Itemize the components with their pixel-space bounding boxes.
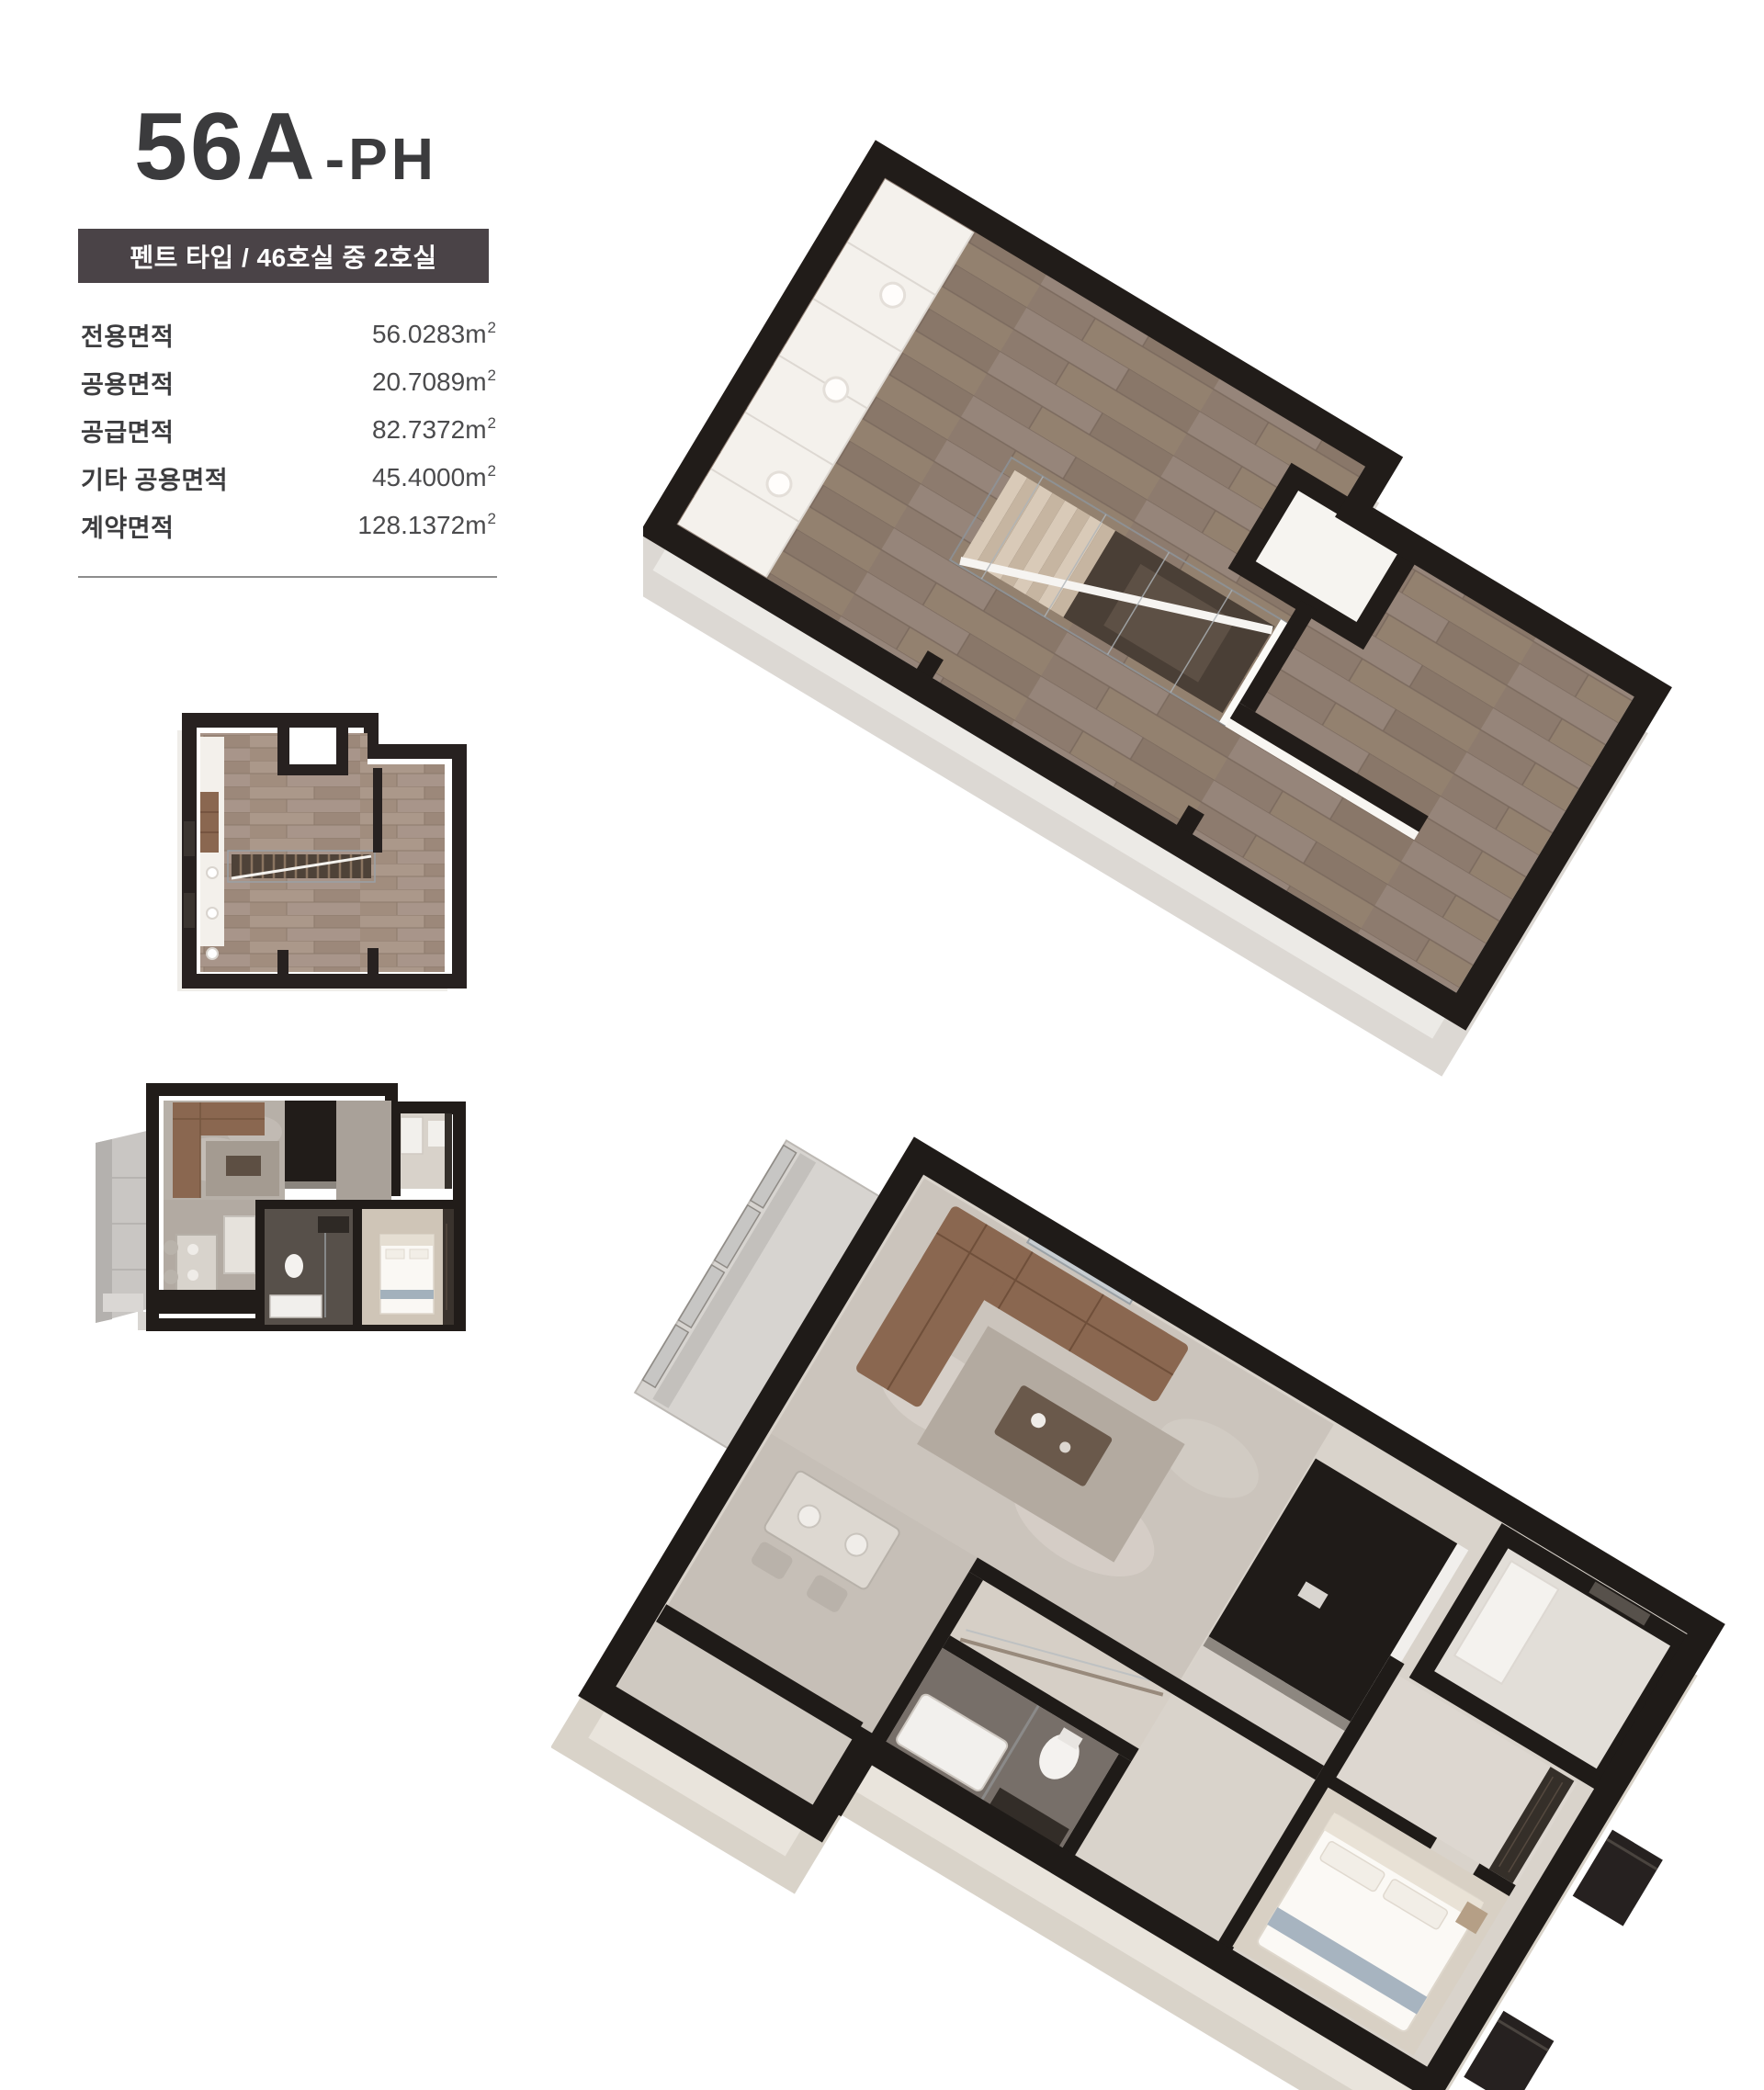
upper-floor-3d-render xyxy=(643,118,1700,1093)
section-divider xyxy=(78,576,497,578)
area-row: 계약면적 128.1372m2 xyxy=(81,502,496,549)
area-value: 82.7372m2 xyxy=(372,415,496,445)
area-row: 공용면적 20.7089m2 xyxy=(81,358,496,406)
type-banner: 펜트 타입 / 46호실 중 2호실 xyxy=(78,229,489,283)
lower-floor-3d-render xyxy=(551,1128,1736,2090)
lower-floorplan-thumbnail xyxy=(85,1077,472,1343)
area-value: 128.1372m2 xyxy=(357,511,496,540)
area-table: 전용면적 56.0283m2 공용면적 20.7089m2 공급면적 82.73… xyxy=(81,311,496,549)
area-label: 계약면적 xyxy=(81,508,174,544)
unit-title-suffix: -PH xyxy=(325,130,437,188)
area-value: 45.4000m2 xyxy=(372,463,496,492)
area-row: 공급면적 82.7372m2 xyxy=(81,406,496,454)
area-value: 20.7089m2 xyxy=(372,367,496,397)
unit-title-main: 56A xyxy=(134,99,318,195)
page: { "header": { "title_main": "56A", "titl… xyxy=(0,0,1764,2090)
type-banner-label: 펜트 타입 / 46호실 중 2호실 xyxy=(130,238,436,275)
upper-floorplan-thumbnail xyxy=(140,709,470,999)
unit-title: 56A -PH xyxy=(134,99,437,195)
area-label: 기타 공용면적 xyxy=(81,460,228,496)
area-label: 공급면적 xyxy=(81,412,174,448)
area-label: 전용면적 xyxy=(81,317,174,353)
area-row: 기타 공용면적 45.4000m2 xyxy=(81,454,496,502)
area-row: 전용면적 56.0283m2 xyxy=(81,311,496,358)
area-value: 56.0283m2 xyxy=(372,320,496,349)
area-label: 공용면적 xyxy=(81,365,174,401)
